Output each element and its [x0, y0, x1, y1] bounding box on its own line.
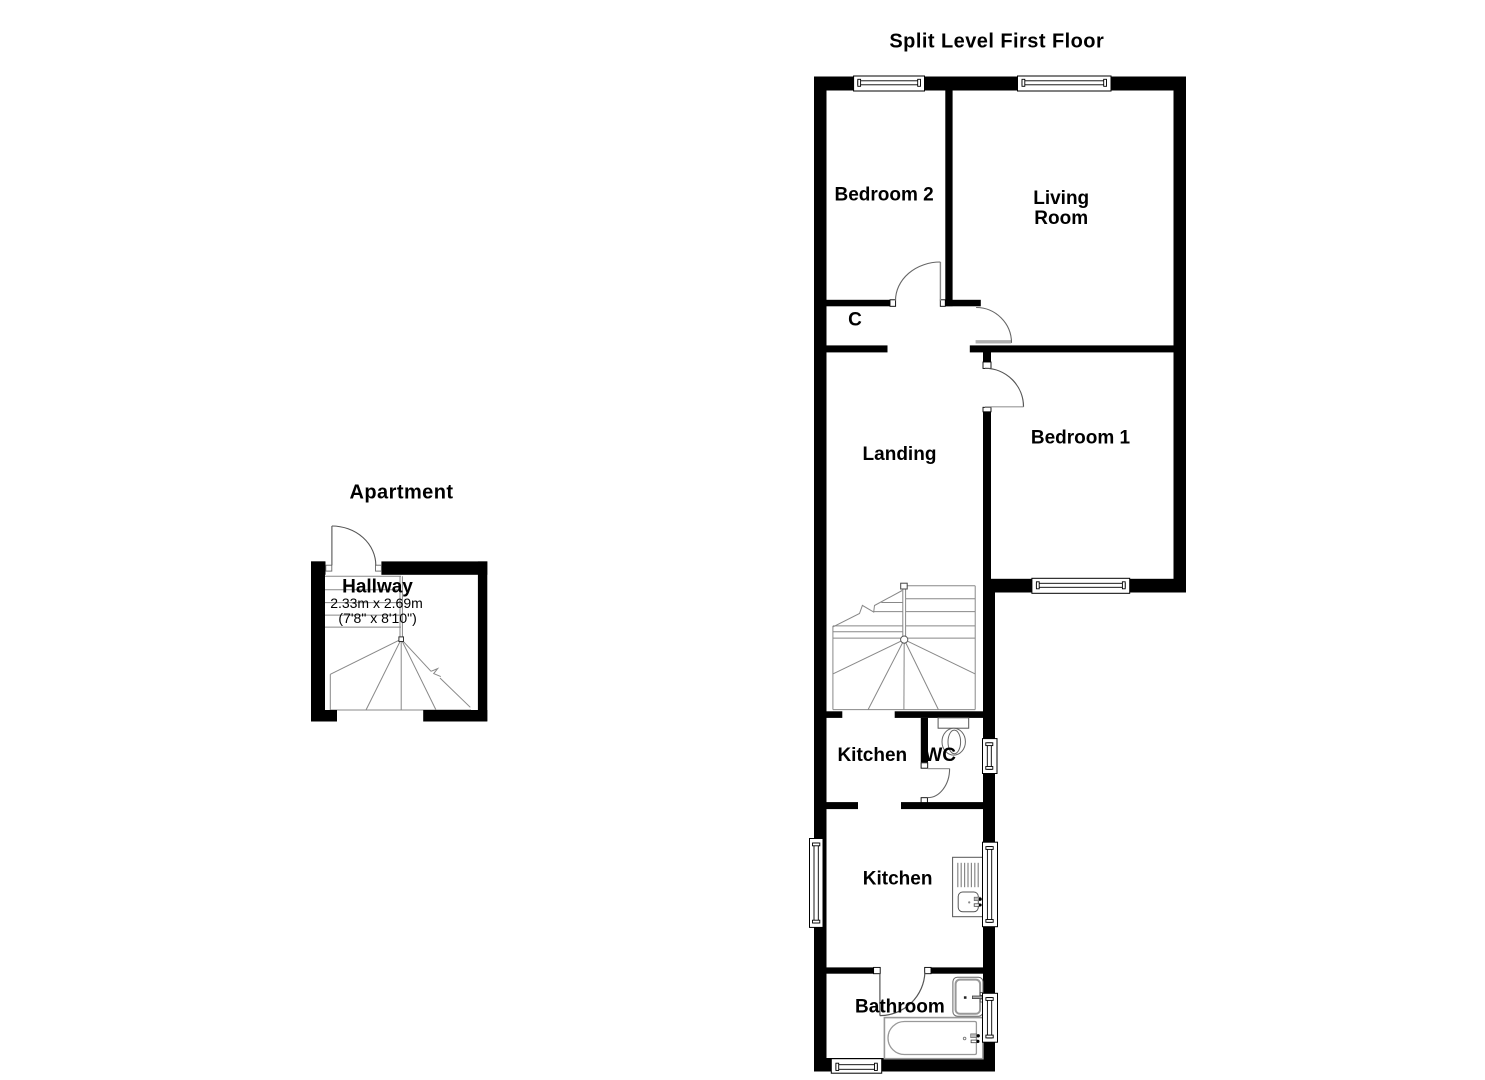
svg-text:Kitchen: Kitchen — [837, 745, 907, 766]
svg-text:Bedroom 1: Bedroom 1 — [1031, 427, 1131, 448]
svg-text:(7'8" x 8'10"): (7'8" x 8'10") — [338, 610, 416, 626]
svg-text:WC: WC — [924, 745, 956, 766]
svg-text:Kitchen: Kitchen — [863, 869, 933, 890]
svg-text:Room: Room — [1034, 208, 1088, 229]
svg-text:C: C — [848, 310, 862, 331]
svg-text:Living: Living — [1033, 188, 1089, 209]
svg-text:Apartment: Apartment — [349, 481, 453, 503]
svg-text:Bathroom: Bathroom — [855, 997, 945, 1018]
svg-text:Split Level First Floor: Split Level First Floor — [889, 31, 1104, 53]
svg-text:Bedroom 2: Bedroom 2 — [834, 185, 933, 206]
svg-text:2.33m x 2.69m: 2.33m x 2.69m — [330, 595, 423, 611]
svg-text:Landing: Landing — [863, 444, 937, 465]
